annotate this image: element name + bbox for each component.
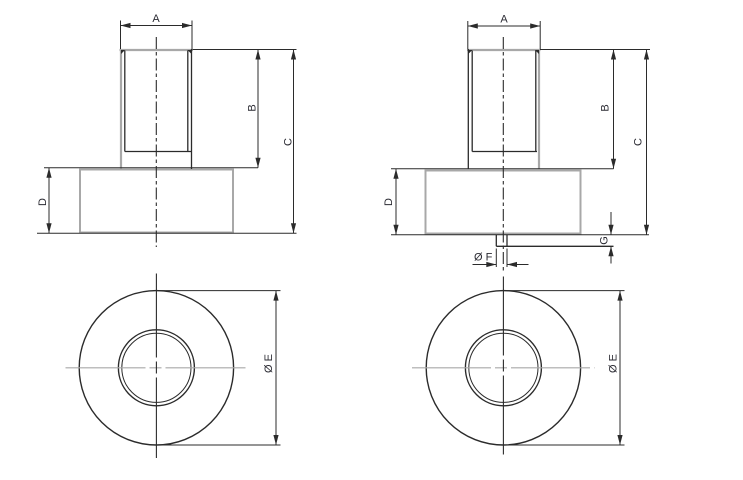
dim-label-a: A <box>500 14 508 26</box>
base-outline <box>80 170 233 233</box>
side-view-left: A B C D <box>37 13 297 247</box>
pin-outline <box>496 235 613 247</box>
dim-label-e: Ø E <box>263 354 275 373</box>
dim-label-c: C <box>633 138 645 146</box>
drawing-canvas: A B C D A B C D G Ø F <box>0 0 743 480</box>
dim-label-g: G <box>599 236 611 245</box>
dim-label-f: Ø F <box>474 252 493 264</box>
dim-label-a: A <box>152 13 160 25</box>
top-view-right: Ø E <box>412 277 625 458</box>
dim-label-e: Ø E <box>608 354 620 373</box>
dim-label-b: B <box>247 104 259 111</box>
dim-label-c: C <box>283 138 295 146</box>
side-view-right: A B C D G Ø F <box>383 14 650 274</box>
stud-outline-dark <box>125 49 192 169</box>
dim-label-b: B <box>600 104 612 111</box>
stud-outline-dark <box>468 49 537 169</box>
dim-label-d: D <box>383 198 395 206</box>
top-view-left: Ø E <box>66 274 281 459</box>
dim-label-d: D <box>37 198 49 206</box>
technical-drawing: A B C D A B C D G Ø F <box>0 0 743 480</box>
